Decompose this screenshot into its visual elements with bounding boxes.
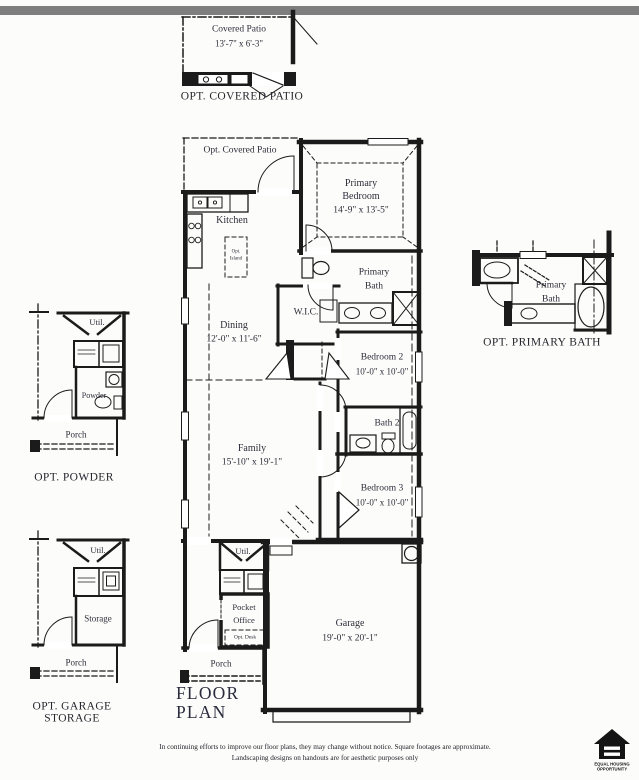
- island-label-line2: Island: [230, 257, 242, 262]
- room-label-powder: Powder: [82, 392, 106, 400]
- floor-plan-sheet: Covered Patio 13'-7" x 6'-3" OPT. COVERE…: [0, 0, 639, 780]
- room-label-pocket-office-2: Office: [233, 616, 255, 625]
- dims-family: 15'-10" x 19'-1": [222, 458, 282, 468]
- floor-plan-title: FLOOR PLAN: [176, 684, 239, 723]
- room-label-porch-storage: Porch: [66, 659, 87, 668]
- room-label-porch-main: Porch: [211, 660, 232, 669]
- room-label-primary-bedroom-2: Bedroom: [342, 192, 379, 202]
- room-label-primary-bedroom-1: Primary: [345, 179, 377, 189]
- room-label-util-powder: Util.: [89, 318, 104, 327]
- room-label-bedroom2: Bedroom 2: [361, 353, 403, 363]
- dims-garage: 19'-0" x 20'-1": [322, 634, 378, 644]
- disclaimer-line1: In continuing efforts to improve our flo…: [60, 743, 590, 751]
- room-label-storage: Storage: [84, 615, 112, 624]
- caption-opt-primary-bath: OPT. PRIMARY BATH: [483, 337, 601, 349]
- caption-opt-covered-patio: OPT. COVERED PATIO: [181, 91, 304, 103]
- floor-plan-title-line2: PLAN: [176, 703, 239, 722]
- room-label-opt-covered-patio-main: Opt. Covered Patio: [203, 146, 276, 156]
- room-label-util-storage: Util.: [90, 546, 105, 555]
- room-label-wic: W.I.C.: [294, 308, 319, 318]
- disclaimer-line2: Landscaping designs on handouts are for …: [60, 754, 590, 762]
- room-label-bath2: Bath 2: [374, 419, 399, 429]
- room-label-primary-bath-inset-1: Primary: [536, 281, 567, 291]
- room-label-garage: Garage: [336, 619, 365, 629]
- room-label-porch-powder: Porch: [66, 431, 87, 440]
- room-label-covered-patio: Covered Patio: [212, 25, 266, 35]
- room-label-primary-bath-1: Primary: [359, 268, 390, 278]
- island-label-line1: Opt.: [232, 250, 241, 255]
- floorplan-linework: [0, 0, 639, 780]
- logo-text-line2: OPPORTUNITY: [597, 767, 627, 772]
- caption-opt-garage-line1: OPT. GARAGE: [33, 701, 112, 713]
- floor-plan-title-line1: FLOOR: [176, 684, 239, 703]
- room-label-dining: Dining: [220, 321, 248, 331]
- dims-bedroom3: 10'-0" x 10'-0": [356, 499, 409, 508]
- room-label-util-main: Util.: [235, 547, 250, 556]
- dims-covered-patio: 13'-7" x 6'-3": [215, 40, 263, 49]
- room-label-pocket-office-1: Pocket: [232, 603, 255, 612]
- equal-housing-opportunity-icon: EQUAL HOUSING OPPORTUNITY: [591, 726, 633, 778]
- dims-bedroom2: 10'-0" x 10'-0": [356, 368, 409, 377]
- dims-primary-bedroom: 14'-9" x 13'-5": [333, 206, 389, 216]
- room-label-primary-bath-inset-2: Bath: [542, 295, 560, 305]
- label-opt-desk: Opt. Desk: [234, 635, 256, 641]
- room-label-family: Family: [238, 444, 266, 454]
- caption-opt-garage-line2: STORAGE: [44, 713, 100, 725]
- room-label-kitchen: Kitchen: [216, 216, 248, 226]
- caption-opt-powder: OPT. POWDER: [34, 472, 114, 484]
- room-label-primary-bath-2: Bath: [365, 282, 383, 292]
- room-label-bedroom3: Bedroom 3: [361, 484, 403, 494]
- dims-dining: 12'-0" x 11'-6": [206, 335, 261, 345]
